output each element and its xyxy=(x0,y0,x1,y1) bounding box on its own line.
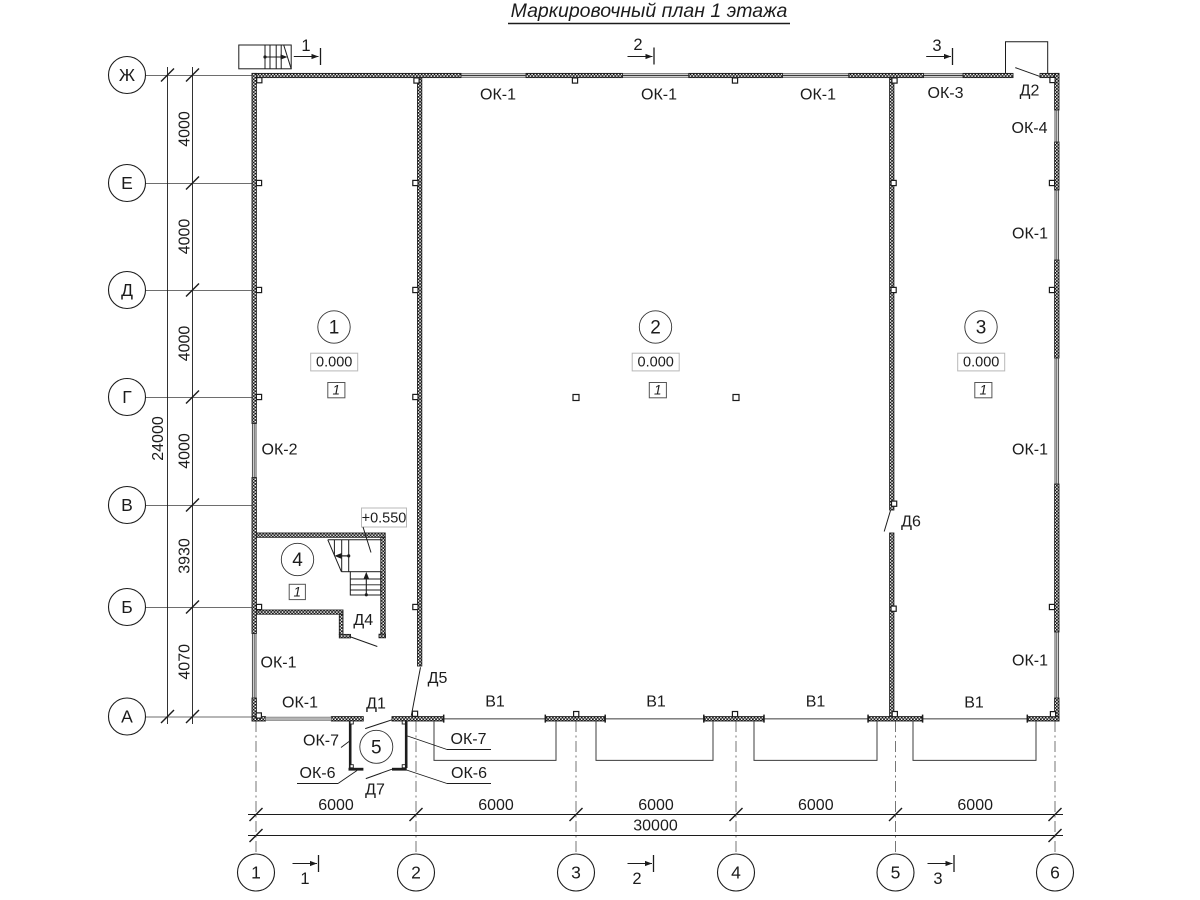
svg-text:1: 1 xyxy=(251,863,261,883)
svg-text:4000: 4000 xyxy=(177,111,194,147)
svg-text:1: 1 xyxy=(300,870,309,888)
svg-text:Г: Г xyxy=(122,387,132,407)
svg-text:В1: В1 xyxy=(646,694,666,711)
svg-text:Б: Б xyxy=(121,597,132,617)
svg-text:ОК-1: ОК-1 xyxy=(1012,226,1048,243)
svg-text:6000: 6000 xyxy=(318,797,354,814)
svg-text:1: 1 xyxy=(654,383,662,398)
svg-text:ОК-1: ОК-1 xyxy=(800,87,836,104)
svg-text:Д5: Д5 xyxy=(428,670,448,687)
svg-text:2: 2 xyxy=(632,870,641,888)
svg-text:1: 1 xyxy=(329,318,340,339)
svg-text:6000: 6000 xyxy=(638,797,674,814)
svg-text:1: 1 xyxy=(333,383,341,398)
svg-text:Д1: Д1 xyxy=(366,696,386,713)
svg-text:ОК-6: ОК-6 xyxy=(300,765,336,782)
svg-text:0.000: 0.000 xyxy=(963,355,999,371)
svg-text:3: 3 xyxy=(932,37,941,55)
svg-text:ОК-1: ОК-1 xyxy=(1012,653,1048,670)
svg-text:ОК-4: ОК-4 xyxy=(1012,120,1048,137)
svg-text:Д: Д xyxy=(121,280,133,300)
svg-text:Д4: Д4 xyxy=(353,612,373,629)
svg-text:4000: 4000 xyxy=(177,326,194,362)
svg-text:1: 1 xyxy=(294,584,302,599)
svg-text:В1: В1 xyxy=(485,694,505,711)
svg-text:Е: Е xyxy=(121,173,133,193)
svg-text:5: 5 xyxy=(371,737,382,758)
svg-text:ОК-6: ОК-6 xyxy=(451,765,487,782)
svg-text:30000: 30000 xyxy=(633,818,678,835)
svg-text:2: 2 xyxy=(633,36,642,54)
svg-text:3: 3 xyxy=(571,863,581,883)
svg-text:Д6: Д6 xyxy=(901,514,921,531)
svg-text:Ж: Ж xyxy=(119,65,135,85)
svg-text:1: 1 xyxy=(301,37,310,55)
svg-text:6: 6 xyxy=(1050,863,1060,883)
svg-text:ОК-1: ОК-1 xyxy=(282,695,318,712)
svg-text:6000: 6000 xyxy=(478,797,514,814)
svg-text:2: 2 xyxy=(411,863,421,883)
svg-text:ОК-7: ОК-7 xyxy=(451,731,487,748)
svg-text:ОК-2: ОК-2 xyxy=(262,442,298,459)
svg-text:6000: 6000 xyxy=(798,797,834,814)
svg-text:ОК-3: ОК-3 xyxy=(928,85,964,102)
svg-text:Д7: Д7 xyxy=(365,782,385,799)
svg-text:4: 4 xyxy=(731,863,741,883)
svg-text:1: 1 xyxy=(980,383,988,398)
svg-text:ОК-1: ОК-1 xyxy=(261,655,297,672)
svg-text:ОК-1: ОК-1 xyxy=(641,87,677,104)
svg-text:2: 2 xyxy=(650,318,661,339)
svg-text:А: А xyxy=(121,707,133,727)
svg-text:3930: 3930 xyxy=(177,538,194,574)
svg-text:0.000: 0.000 xyxy=(638,355,674,371)
svg-text:3: 3 xyxy=(976,318,987,339)
svg-text:ОК-7: ОК-7 xyxy=(303,733,339,750)
svg-text:3: 3 xyxy=(933,870,942,888)
svg-text:+0.550: +0.550 xyxy=(362,511,407,527)
svg-text:4: 4 xyxy=(292,550,303,571)
svg-text:6000: 6000 xyxy=(957,797,993,814)
svg-text:ОК-1: ОК-1 xyxy=(480,87,516,104)
svg-text:ОК-1: ОК-1 xyxy=(1012,442,1048,459)
svg-text:4000: 4000 xyxy=(177,219,194,255)
svg-text:0.000: 0.000 xyxy=(316,355,352,371)
svg-text:5: 5 xyxy=(891,863,901,883)
svg-text:Маркировочный план 1 этажа: Маркировочный план 1 этажа xyxy=(511,0,788,22)
svg-text:4070: 4070 xyxy=(177,644,194,680)
svg-text:В1: В1 xyxy=(964,695,984,712)
svg-text:24000: 24000 xyxy=(150,416,167,461)
svg-text:Д2: Д2 xyxy=(1020,83,1040,100)
svg-text:В: В xyxy=(121,495,133,515)
svg-text:4000: 4000 xyxy=(177,433,194,469)
svg-text:В1: В1 xyxy=(806,694,826,711)
